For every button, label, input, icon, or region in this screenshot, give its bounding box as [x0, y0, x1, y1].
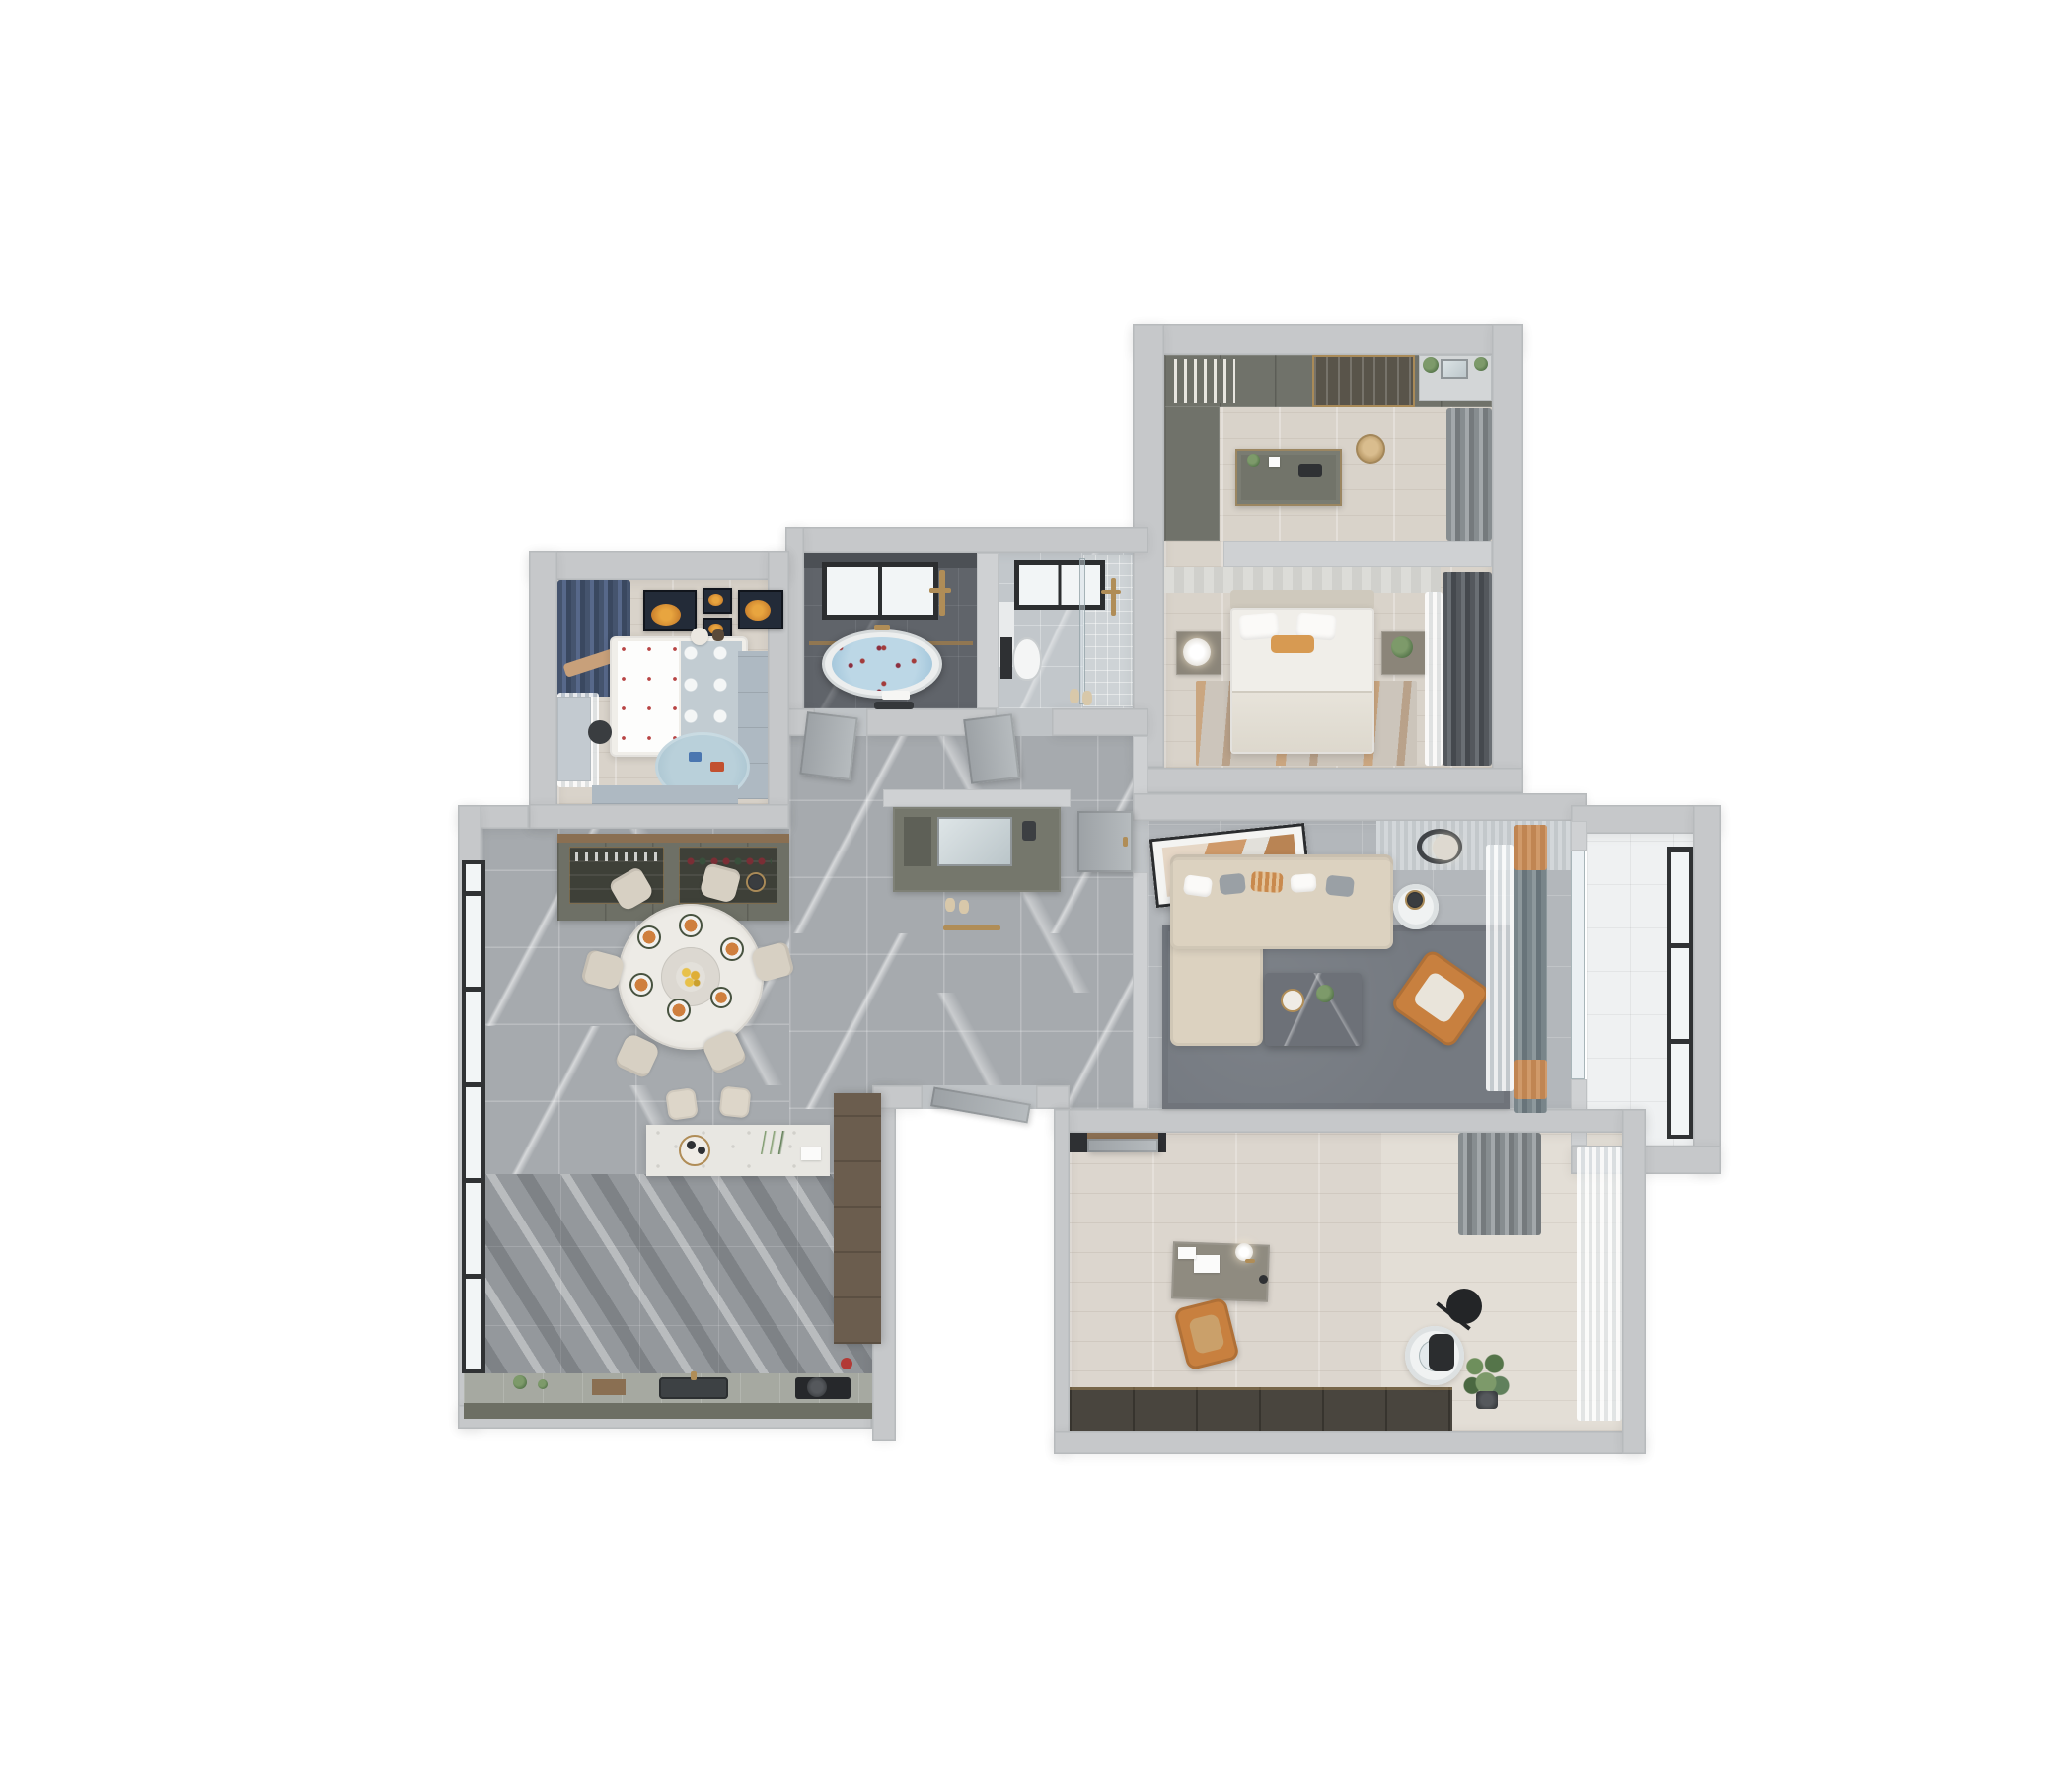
kids-cabinet-low	[592, 785, 738, 804]
kitchen-faucet	[691, 1371, 697, 1380]
dining-flowers	[676, 962, 705, 992]
living-sheer-curtain	[1486, 845, 1514, 1091]
wall-bath-bottom-3	[1052, 708, 1148, 736]
closet-island-plant	[1247, 454, 1260, 467]
closet-vanity-plant-2	[1474, 357, 1488, 371]
kitchen-counter-face	[464, 1403, 872, 1419]
kitchen-red-kettle	[841, 1358, 852, 1369]
master-duvet-fold	[1232, 691, 1372, 752]
hall-console-shelf	[904, 817, 931, 866]
kitchen-plant-1	[513, 1375, 527, 1389]
living-ring-light-fill	[1433, 835, 1458, 860]
bath-towel	[882, 691, 910, 700]
wall-living-top	[1133, 793, 1587, 821]
island-cup-1	[687, 1141, 696, 1149]
bath2-slipper-1	[1070, 689, 1079, 703]
dining-plate-1	[679, 914, 703, 937]
bath-tub-water	[832, 637, 932, 691]
kids-art-1-moon	[651, 604, 681, 626]
kids-toy-1	[689, 752, 702, 762]
wall-balcony-right	[1693, 805, 1721, 1174]
glass-living-balcony	[1571, 851, 1585, 1079]
study-cup	[1259, 1275, 1268, 1284]
kids-bed-runner	[618, 641, 679, 752]
kitchen-pot	[807, 1377, 827, 1397]
dining-bottles	[685, 856, 772, 866]
bar-stool-2	[719, 1086, 752, 1119]
living-pillow-1	[1183, 874, 1214, 898]
study-plant-pot	[1476, 1391, 1498, 1409]
dining-pendant	[746, 872, 766, 892]
study-bookcase	[1070, 1387, 1452, 1431]
kitchen-floor	[481, 1174, 872, 1405]
wall-kids-bottom	[529, 804, 789, 829]
closet-island-tray	[1298, 464, 1322, 477]
closet-vanity-mirror	[1441, 359, 1468, 379]
bath-tub-faucet	[874, 625, 890, 630]
bath-shower-fixture	[939, 570, 945, 616]
wall-bath-top	[785, 527, 1148, 553]
living-coffee-tray	[1281, 989, 1304, 1012]
bath2-shower-arm	[1101, 590, 1121, 594]
wall-hall-console-partition	[883, 789, 1071, 807]
kitchen-sink	[659, 1377, 728, 1399]
kids-toy-2	[710, 762, 724, 772]
floor-plan-3d-render	[0, 0, 2072, 1776]
living-curtain-tan-top	[1514, 825, 1547, 870]
kitchen-plant-2	[538, 1379, 548, 1389]
kids-toy-deer	[712, 629, 724, 641]
living-pillow-5	[1325, 875, 1355, 898]
hall-door-living-handle	[1123, 837, 1128, 847]
window-west-bay	[462, 860, 485, 1373]
closet-glass-wardrobe	[1312, 355, 1415, 407]
wall-closet-right	[1492, 324, 1523, 793]
wall-closet-top	[1133, 324, 1523, 355]
dining-plate-5	[629, 973, 653, 997]
study-desk-lamp-arm	[1245, 1259, 1255, 1263]
closet-basket	[1356, 434, 1385, 464]
living-sofa	[1170, 854, 1393, 949]
wall-bath-divider	[977, 553, 999, 708]
hall-console-decor	[1022, 821, 1036, 841]
bath2-slipper-2	[1082, 691, 1092, 705]
study-curtain	[1458, 1133, 1541, 1235]
study-floor-lamp-shade	[1429, 1334, 1454, 1371]
hall-console-mirror	[937, 817, 1012, 866]
bath2-toilet	[1012, 637, 1042, 681]
wall-hall-south-east-stub	[1036, 1085, 1070, 1109]
study-sheer-curtain	[1577, 1147, 1622, 1421]
bath2-toilet-panel	[1000, 637, 1012, 679]
window-balcony-right	[1667, 847, 1693, 1139]
living-coffee-plant	[1316, 985, 1334, 1002]
kitchen-tall-cabinet	[834, 1093, 881, 1344]
wall-living-balcony-stub-top	[1571, 821, 1587, 851]
wall-kids-top	[529, 551, 789, 580]
dining-sideboard-top	[557, 834, 789, 843]
master-plant	[1391, 636, 1413, 658]
living-coffee-table	[1265, 973, 1362, 1046]
living-pillow-3	[1250, 871, 1283, 893]
wall-kids-left	[529, 551, 557, 829]
wall-closet-master-divider	[1223, 541, 1492, 567]
kids-desk-chair	[588, 720, 612, 744]
bath-shower-arm	[929, 588, 951, 593]
bath2-shower-fixture	[1111, 578, 1116, 616]
bath-mat	[874, 702, 914, 709]
window-bath-toilet	[1014, 560, 1105, 610]
kids-teddy	[691, 628, 708, 645]
wall-hall-living-lower	[1133, 872, 1148, 1109]
study-door	[1087, 1139, 1158, 1152]
master-bed-headboard	[1230, 590, 1374, 610]
hall-slipper-1	[945, 898, 955, 912]
study-laptop	[1194, 1255, 1220, 1273]
closet-wardrobe-left	[1164, 407, 1220, 541]
living-pillow-4	[1290, 873, 1316, 893]
dining-plate-2	[720, 937, 744, 961]
island-cup-2	[698, 1147, 705, 1154]
dining-plate-3	[710, 987, 732, 1008]
wall-study-south	[1054, 1431, 1646, 1454]
hall-door-bath-toilet	[963, 713, 1020, 784]
kids-art-4-moon	[745, 600, 771, 621]
living-pillow-2	[1219, 873, 1246, 896]
window-bath-tub	[822, 562, 938, 620]
bar-stool-1	[665, 1087, 699, 1121]
island-plant-sprig	[756, 1131, 795, 1154]
island-tray	[679, 1135, 710, 1166]
kids-desk	[557, 697, 591, 781]
bath2-shower-glass	[1079, 558, 1085, 704]
wall-study-west	[1054, 1109, 1070, 1454]
dining-plate-4	[667, 999, 691, 1022]
master-pillow-orange	[1271, 635, 1314, 653]
master-lamp	[1183, 638, 1211, 666]
hall-gold-inlay	[943, 925, 1000, 930]
living-side-lamp	[1405, 890, 1425, 910]
closet-curtain	[1446, 408, 1492, 541]
island-card	[801, 1147, 821, 1160]
dining-plate-6	[637, 925, 661, 949]
study-papers	[1178, 1247, 1196, 1259]
living-curtain-tan-bottom	[1514, 1060, 1547, 1099]
kitchen-board	[592, 1379, 626, 1395]
closet-open-wardrobe-clothes	[1174, 359, 1235, 403]
master-sheer-curtain	[1425, 592, 1443, 766]
closet-island-decor	[1269, 457, 1280, 467]
hall-door-bath-tub	[799, 711, 857, 780]
dining-glasses	[575, 852, 658, 861]
study-floor-lamp-disc	[1446, 1289, 1482, 1324]
closet-vanity-plant-1	[1423, 357, 1439, 373]
wall-study-east	[1622, 1109, 1646, 1454]
wall-study-north	[1054, 1109, 1646, 1133]
master-curtain	[1443, 572, 1492, 766]
kids-art-2-moon	[708, 594, 723, 606]
hall-slipper-2	[959, 900, 969, 914]
wall-master-bottom	[1133, 768, 1523, 793]
